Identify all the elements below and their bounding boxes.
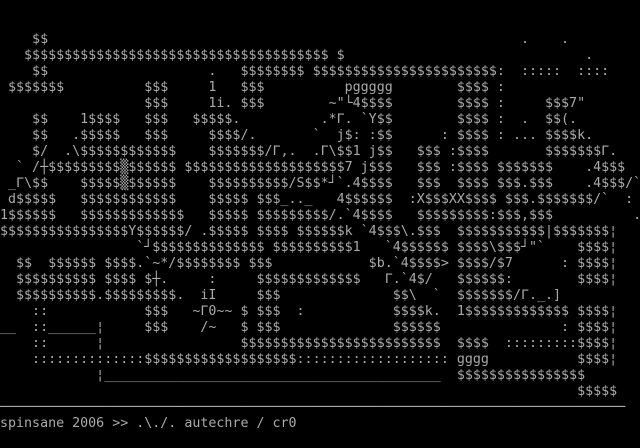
terminal-screen: $$ . . $$$$$$$$$$$$$$$$$$$$$$$$$$$$$$$$$…	[0, 0, 640, 448]
status-line: spinsane 2006 >> .\./. autechre / cr0	[0, 416, 297, 432]
ascii-art: $$ . . $$$$$$$$$$$$$$$$$$$$$$$$$$$$$$$$$…	[0, 0, 640, 416]
